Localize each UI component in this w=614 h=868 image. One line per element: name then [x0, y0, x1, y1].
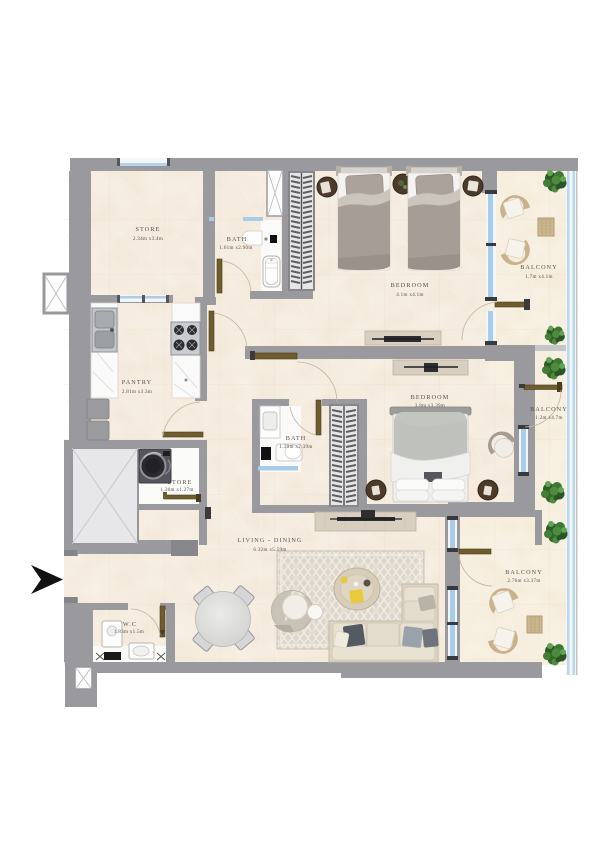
svg-text:BEDROOM: BEDROOM [411, 394, 450, 401]
svg-text:1.61m x2.90m: 1.61m x2.90m [219, 245, 252, 251]
svg-text:4.1m x4.1m: 4.1m x4.1m [396, 292, 423, 298]
svg-text:BALCONY: BALCONY [530, 406, 568, 413]
svg-text:1.36m x1.27m: 1.36m x1.27m [160, 487, 193, 493]
svg-text:BATH: BATH [227, 236, 248, 243]
svg-text:1.83m x1.5m: 1.83m x1.5m [114, 629, 144, 635]
svg-text:PANTRY: PANTRY [122, 379, 152, 386]
svg-text:BATH: BATH [286, 435, 307, 442]
svg-text:2.81m x3.3m: 2.81m x3.3m [122, 389, 152, 395]
svg-text:2.34m x3.4m: 2.34m x3.4m [133, 236, 163, 242]
svg-text:3.8m x3.39m: 3.8m x3.39m [415, 403, 445, 409]
svg-text:STORE: STORE [168, 479, 193, 486]
svg-text:6.32m x5.59m: 6.32m x5.59m [253, 547, 286, 553]
svg-text:2.76m x3.37m: 2.76m x3.37m [507, 578, 540, 584]
svg-text:BALCONY: BALCONY [505, 569, 543, 576]
svg-text:1.2m x4.7m: 1.2m x4.7m [535, 415, 562, 421]
svg-text:STORE: STORE [136, 226, 161, 233]
svg-text:W.C: W.C [123, 621, 137, 628]
svg-text:1.7m x4.1m: 1.7m x4.1m [525, 274, 552, 280]
svg-text:BEDROOM: BEDROOM [391, 282, 430, 289]
svg-text:1.39m x2.39m: 1.39m x2.39m [279, 444, 312, 450]
svg-text:BALCONY: BALCONY [520, 264, 558, 271]
svg-text:LIVING - DINING: LIVING - DINING [238, 537, 303, 544]
